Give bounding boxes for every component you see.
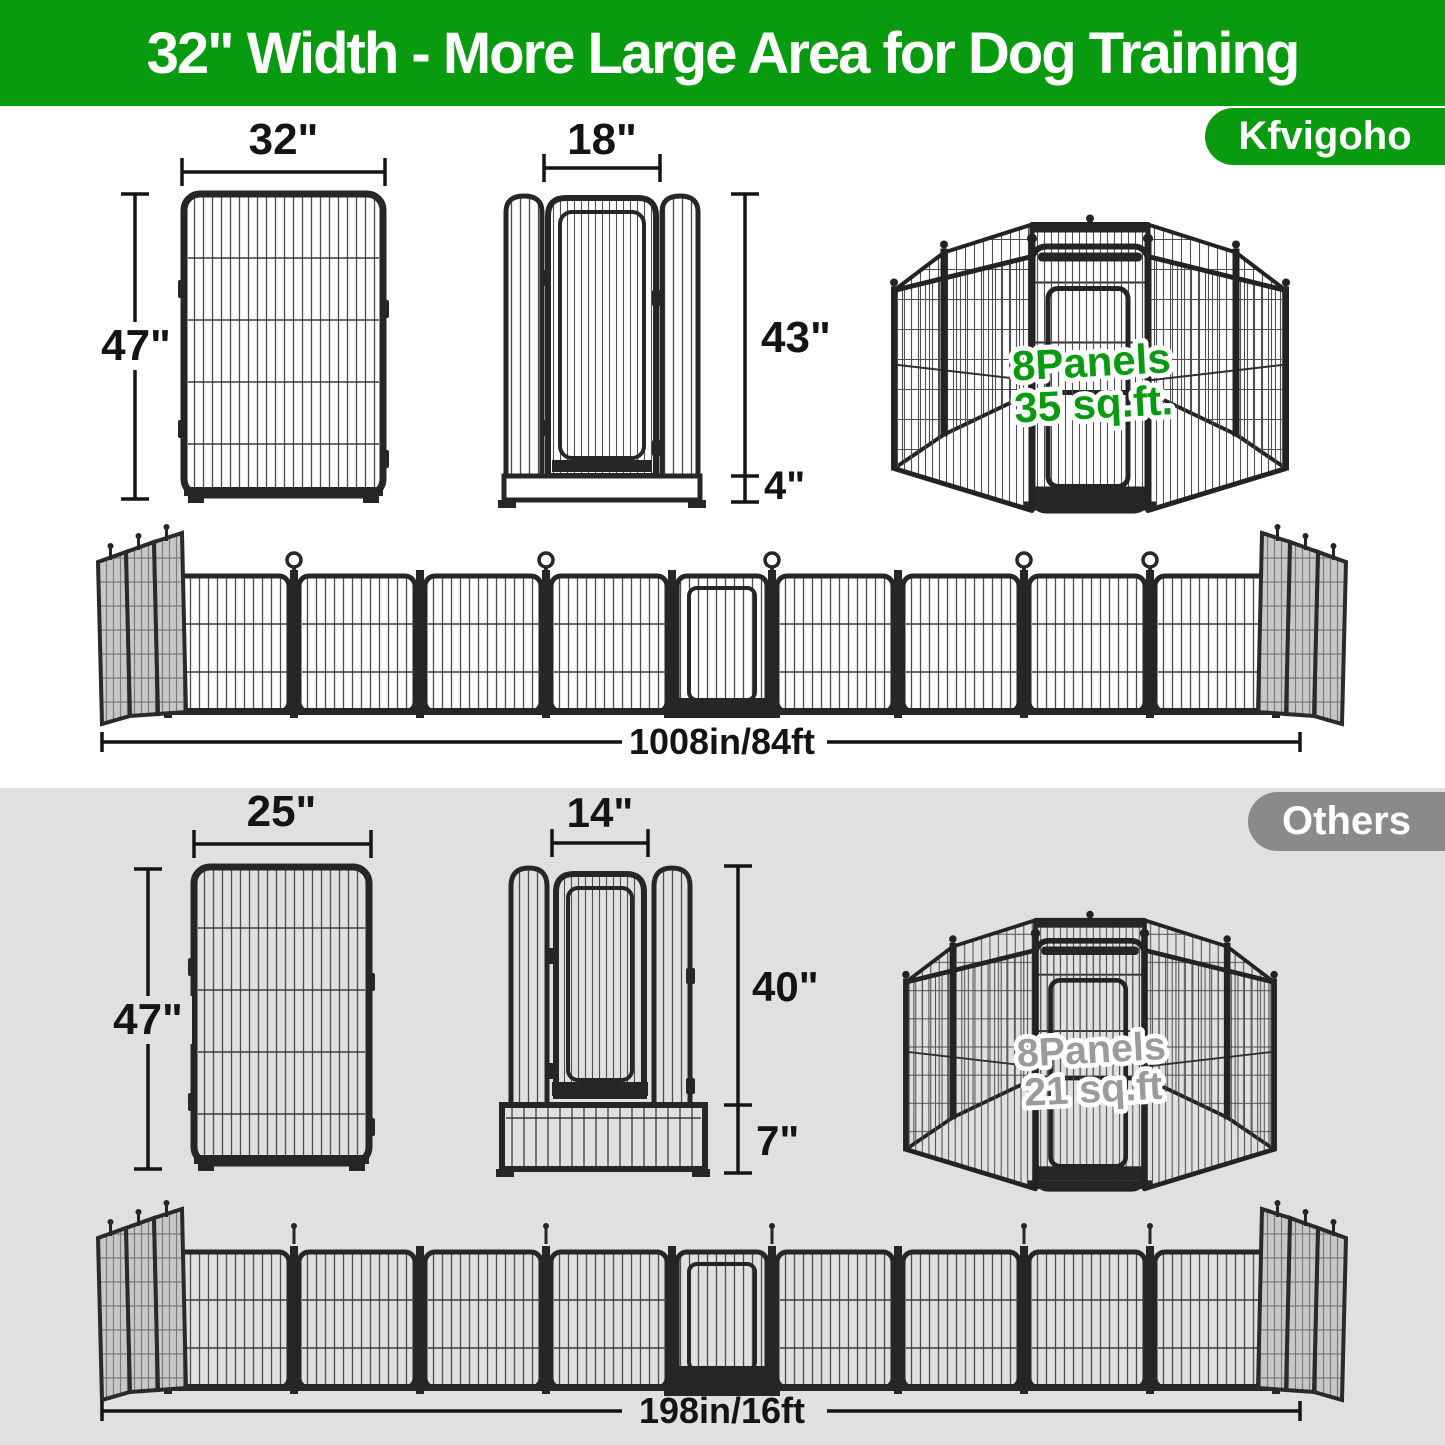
pen-photo-kfvigoho: 8Panels 35 sq.ft. bbox=[880, 192, 1300, 527]
door-panel-diagram-others: 14" 40" 7" bbox=[470, 798, 830, 1218]
panel-width-label: 32" bbox=[180, 118, 387, 162]
panel-height-label: 47" bbox=[104, 996, 192, 1044]
pen-area-label: 35 sq.ft. bbox=[1013, 376, 1174, 431]
pen-photo-others: 8Panels 21 sq.ft bbox=[875, 892, 1305, 1202]
row-total-length-label: 198in/16ft bbox=[82, 1393, 1362, 1429]
pen-illustration: 8Panels 21 sq.ft bbox=[875, 892, 1305, 1202]
panel-diagram-others: 25" 47" bbox=[110, 798, 440, 1198]
panel-diagram-kfvigoho: 32" 47" bbox=[100, 120, 430, 520]
panel-illustration bbox=[100, 120, 430, 520]
door-panel-diagram-kfvigoho: 18" 43" 4" bbox=[480, 120, 840, 520]
door-bottom-height-label: 4" bbox=[764, 466, 805, 506]
door-bottom-height-label: 7" bbox=[756, 1120, 799, 1162]
pen-illustration: 8Panels 35 sq.ft. bbox=[880, 192, 1300, 527]
brand-badge-label: Kfvigoho bbox=[1238, 114, 1411, 159]
panel-height-label: 47" bbox=[92, 322, 180, 370]
row-total-length-label: 1008in/84ft bbox=[82, 724, 1362, 760]
header-banner: 32" Width - More Large Area for Dog Trai… bbox=[0, 0, 1445, 106]
product-infographic: 32" Width - More Large Area for Dog Trai… bbox=[0, 0, 1445, 1445]
panel-width-label: 25" bbox=[192, 790, 371, 834]
door-height-label: 43" bbox=[761, 316, 831, 360]
banner-title: 32" Width - More Large Area for Dog Trai… bbox=[147, 20, 1299, 87]
pen-area-label: 21 sq.ft bbox=[1023, 1064, 1163, 1115]
others-badge: Others bbox=[1248, 792, 1445, 851]
others-badge-label: Others bbox=[1282, 799, 1411, 844]
door-width-label: 14" bbox=[552, 792, 648, 834]
fence-row-diagram-others: 198in/16ft bbox=[82, 1198, 1362, 1445]
door-width-label: 18" bbox=[544, 118, 660, 162]
fence-row-diagram-kfvigoho: 1008in/84ft bbox=[82, 522, 1362, 772]
brand-badge: Kfvigoho bbox=[1205, 108, 1445, 165]
door-height-label: 40" bbox=[752, 966, 819, 1008]
